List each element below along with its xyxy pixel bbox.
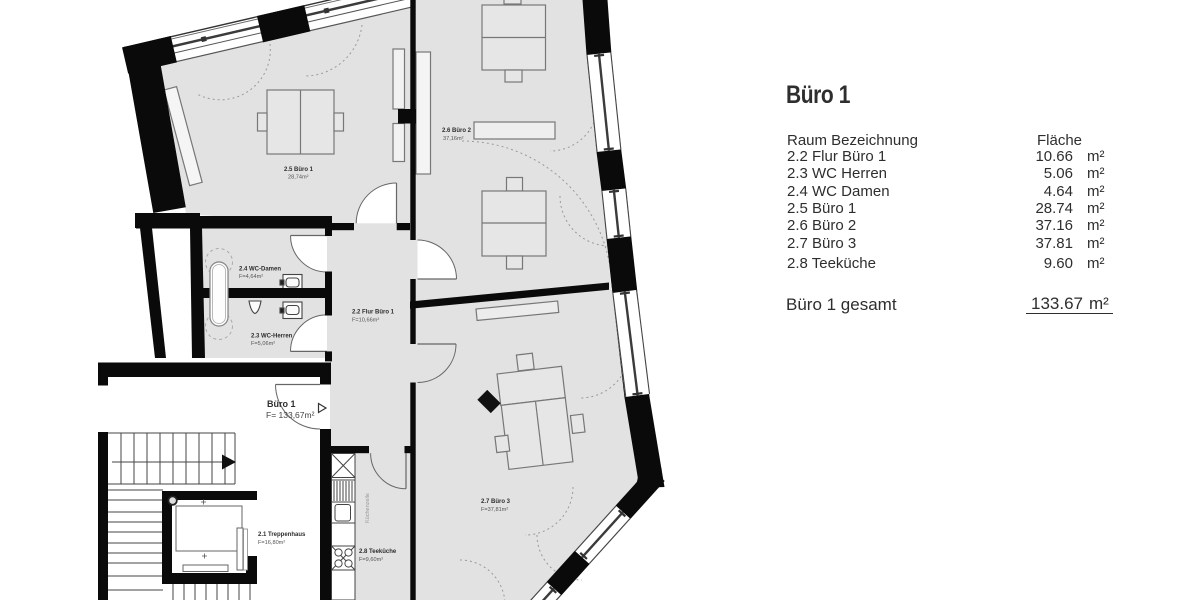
svg-text:2.6 Büro 2: 2.6 Büro 2 [442,128,472,134]
svg-text:F=9,60m²: F=9,60m² [359,557,383,563]
svg-text:2.2 Flur Büro 1: 2.2 Flur Büro 1 [352,310,395,316]
svg-text:F=4,64m²: F=4,64m² [239,274,263,280]
svg-text:2.7 Büro 3: 2.7 Büro 3 [481,499,511,505]
svg-text:Büro 1: Büro 1 [267,399,296,409]
svg-text:2.4 WC-Damen: 2.4 WC-Damen [239,267,281,273]
svg-text:37,16m²: 37,16m² [443,136,464,142]
svg-text:2.8 Teeküche: 2.8 Teeküche [359,549,397,555]
svg-text:F=16,80m²: F=16,80m² [258,540,285,546]
svg-text:2.5 Büro 1: 2.5 Büro 1 [284,167,314,173]
svg-text:2.1 Treppenhaus: 2.1 Treppenhaus [258,532,306,538]
svg-text:F=5,06m²: F=5,06m² [251,341,275,347]
svg-text:F=10,66m²: F=10,66m² [352,318,379,324]
svg-text:F= 133,67m²: F= 133,67m² [266,410,315,420]
svg-text:F=37,81m²: F=37,81m² [481,507,508,513]
svg-text:Küchenzeile: Küchenzeile [365,493,371,523]
svg-text:28,74m²: 28,74m² [288,175,309,181]
svg-text:2.3 WC-Herren: 2.3 WC-Herren [251,334,293,340]
